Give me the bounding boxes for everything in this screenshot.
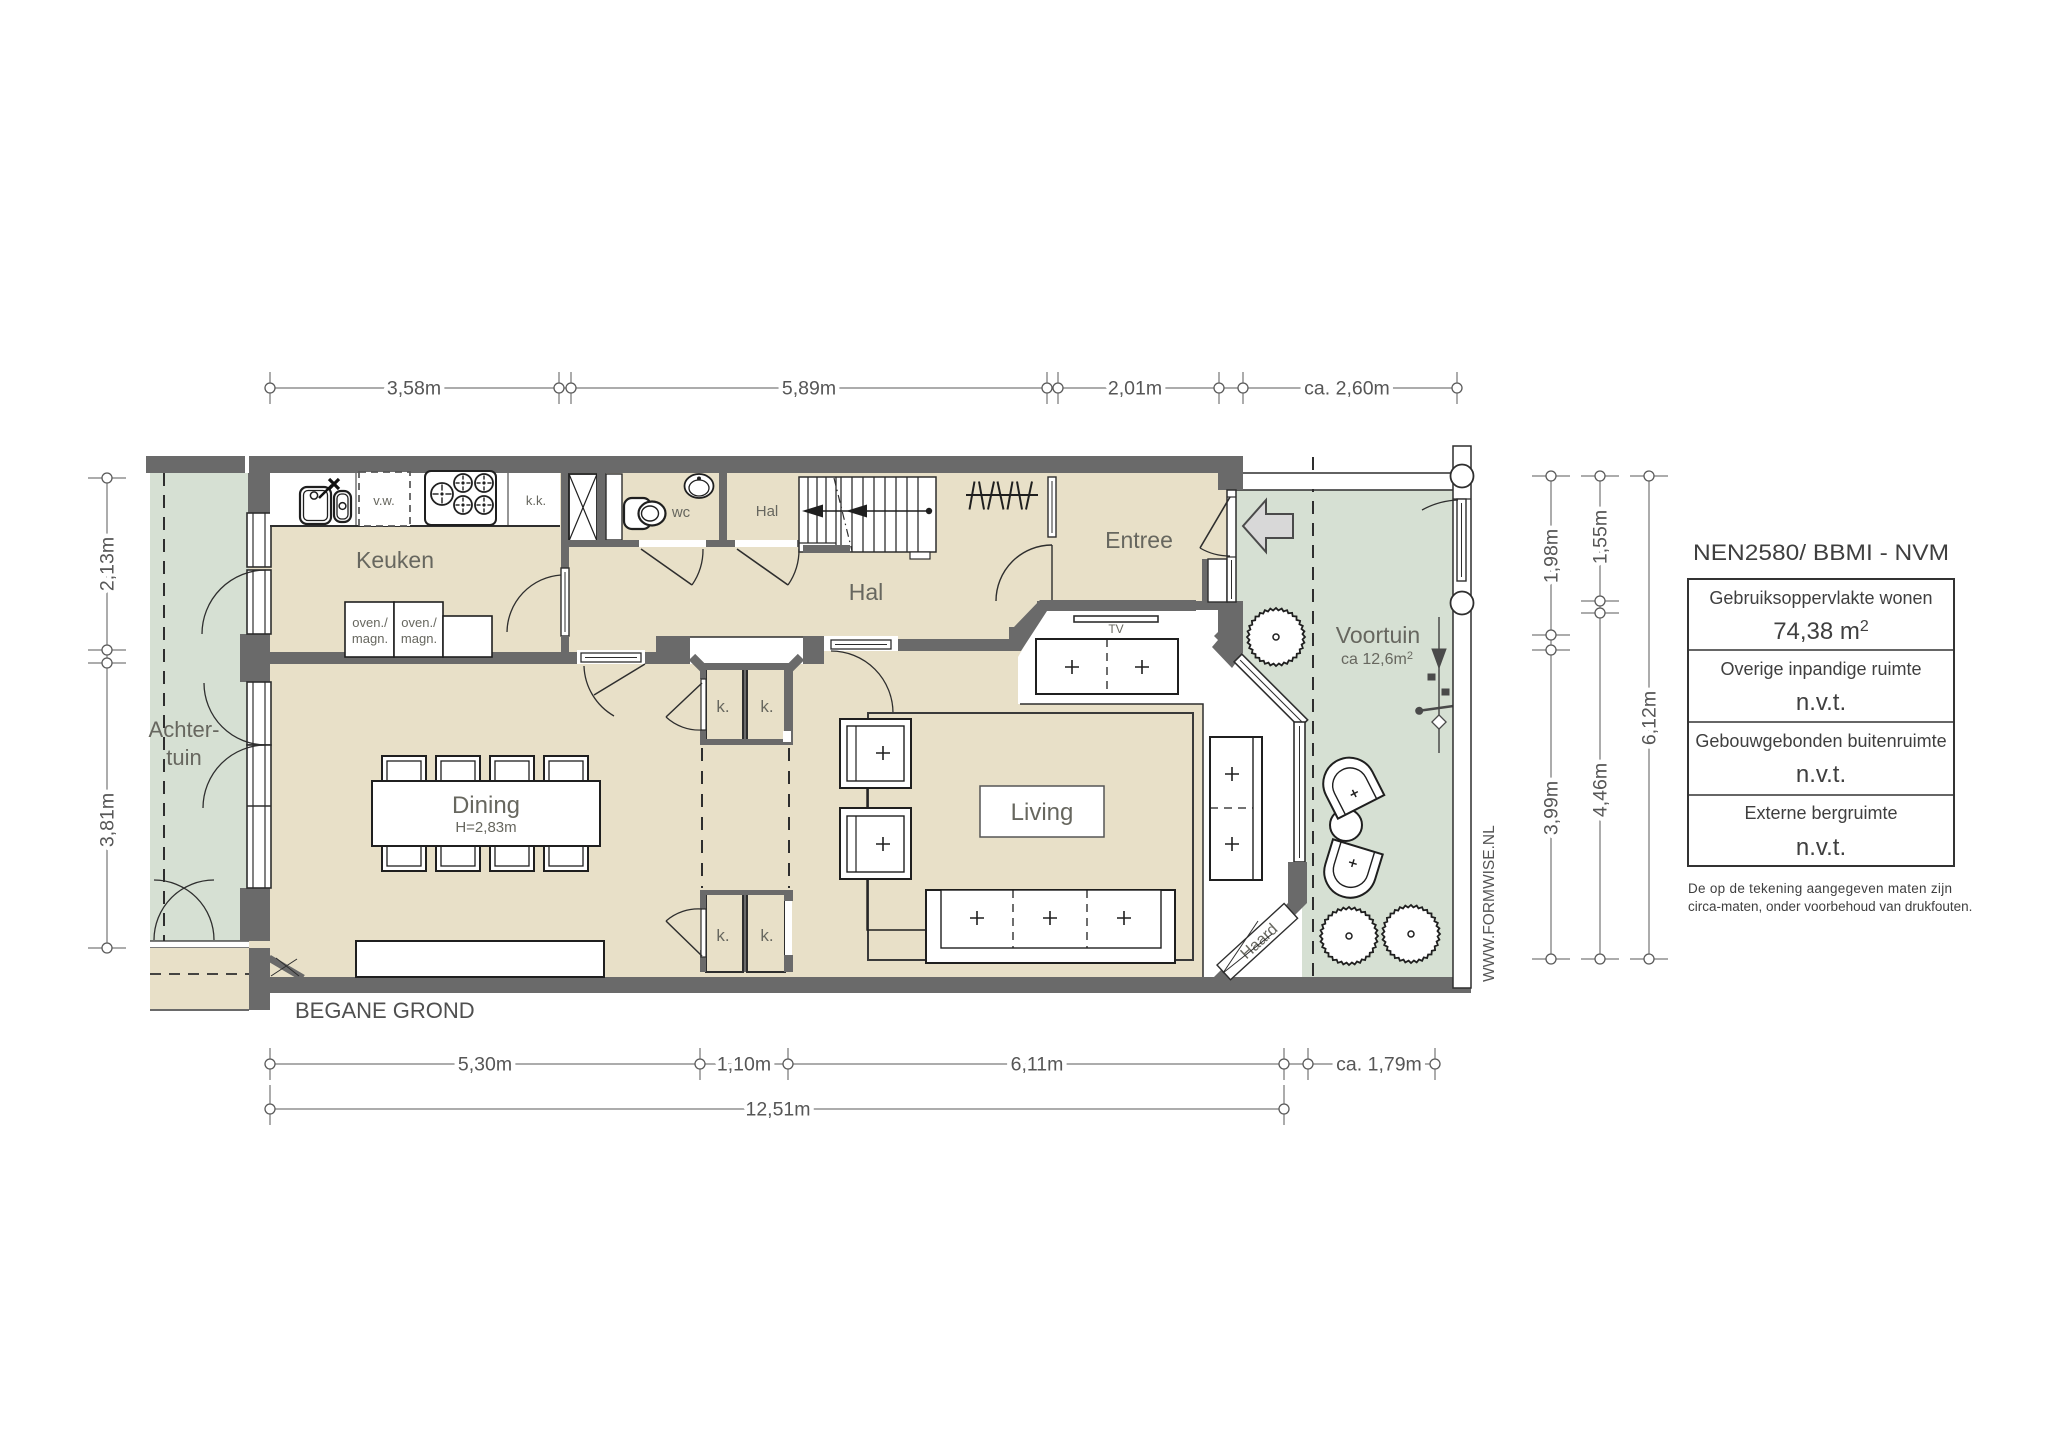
svg-text:3,99m: 3,99m bbox=[1541, 781, 1563, 835]
svg-text:k.: k. bbox=[760, 697, 773, 716]
svg-text:2,13m: 2,13m bbox=[97, 537, 119, 591]
svg-text:k.: k. bbox=[716, 926, 729, 945]
svg-text:Hal: Hal bbox=[756, 503, 779, 520]
svg-text:BEGANE GROND: BEGANE GROND bbox=[295, 998, 475, 1023]
svg-text:Entree: Entree bbox=[1105, 527, 1173, 553]
svg-text:Overige inpandige ruimte: Overige inpandige ruimte bbox=[1720, 659, 1921, 679]
svg-text:Voortuin: Voortuin bbox=[1336, 622, 1420, 648]
svg-text:ca. 1,79m: ca. 1,79m bbox=[1336, 1054, 1422, 1076]
svg-text:Hal: Hal bbox=[849, 579, 884, 605]
svg-text:4,46m: 4,46m bbox=[1590, 763, 1612, 817]
svg-text:Keuken: Keuken bbox=[356, 547, 434, 573]
svg-text:n.v.t.: n.v.t. bbox=[1796, 689, 1846, 716]
svg-text:Externe bergruimte: Externe bergruimte bbox=[1744, 803, 1897, 823]
svg-text:5,89m: 5,89m bbox=[782, 378, 836, 400]
svg-text:1,10m: 1,10m bbox=[717, 1054, 771, 1076]
svg-text:tuin: tuin bbox=[166, 745, 201, 770]
svg-text:v.w.: v.w. bbox=[373, 493, 394, 508]
svg-text:2,01m: 2,01m bbox=[1108, 378, 1162, 400]
svg-text:De op de tekening aangegeven m: De op de tekening aangegeven maten zijn bbox=[1688, 881, 1952, 896]
svg-text:Gebruiksoppervlakte wonen: Gebruiksoppervlakte wonen bbox=[1709, 588, 1932, 608]
svg-text:circa-maten, onder voorbehoud: circa-maten, onder voorbehoud van drukfo… bbox=[1688, 899, 1972, 914]
svg-text:n.v.t.: n.v.t. bbox=[1796, 834, 1846, 861]
svg-text:WWW.FORMWISE.NL: WWW.FORMWISE.NL bbox=[1481, 825, 1498, 982]
svg-text:12,51m: 12,51m bbox=[745, 1099, 810, 1121]
svg-text:3,58m: 3,58m bbox=[387, 378, 441, 400]
svg-text:oven./: oven./ bbox=[352, 615, 388, 630]
svg-text:1,55m: 1,55m bbox=[1590, 510, 1612, 564]
svg-text:magn.: magn. bbox=[352, 631, 388, 646]
svg-text:H=2,83m: H=2,83m bbox=[455, 819, 516, 836]
svg-text:5,30m: 5,30m bbox=[458, 1054, 512, 1076]
svg-text:Gebouwgebonden buitenruimte: Gebouwgebonden buitenruimte bbox=[1695, 731, 1946, 751]
svg-text:wc: wc bbox=[671, 504, 691, 521]
svg-text:oven./: oven./ bbox=[401, 615, 437, 630]
svg-text:NEN2580/ BBMI - NVM: NEN2580/ BBMI - NVM bbox=[1693, 540, 1949, 565]
svg-text:1,98m: 1,98m bbox=[1541, 529, 1563, 583]
svg-text:3,81m: 3,81m bbox=[97, 793, 119, 847]
svg-text:6,12m: 6,12m bbox=[1639, 691, 1661, 745]
svg-text:6,11m: 6,11m bbox=[1011, 1054, 1064, 1076]
svg-text:74,38 m2: 74,38 m2 bbox=[1773, 618, 1869, 645]
svg-text:k.k.: k.k. bbox=[526, 493, 546, 508]
svg-text:Dining: Dining bbox=[452, 792, 520, 819]
svg-text:TV: TV bbox=[1108, 622, 1123, 636]
svg-text:Living: Living bbox=[1011, 799, 1074, 826]
svg-text:k.: k. bbox=[760, 926, 773, 945]
svg-text:k.: k. bbox=[716, 697, 729, 716]
svg-text:magn.: magn. bbox=[401, 631, 437, 646]
svg-text:ca. 2,60m: ca. 2,60m bbox=[1304, 378, 1390, 400]
svg-text:ca 12,6m2: ca 12,6m2 bbox=[1341, 650, 1413, 668]
svg-text:n.v.t.: n.v.t. bbox=[1796, 761, 1846, 788]
svg-text:Achter-: Achter- bbox=[149, 717, 220, 742]
